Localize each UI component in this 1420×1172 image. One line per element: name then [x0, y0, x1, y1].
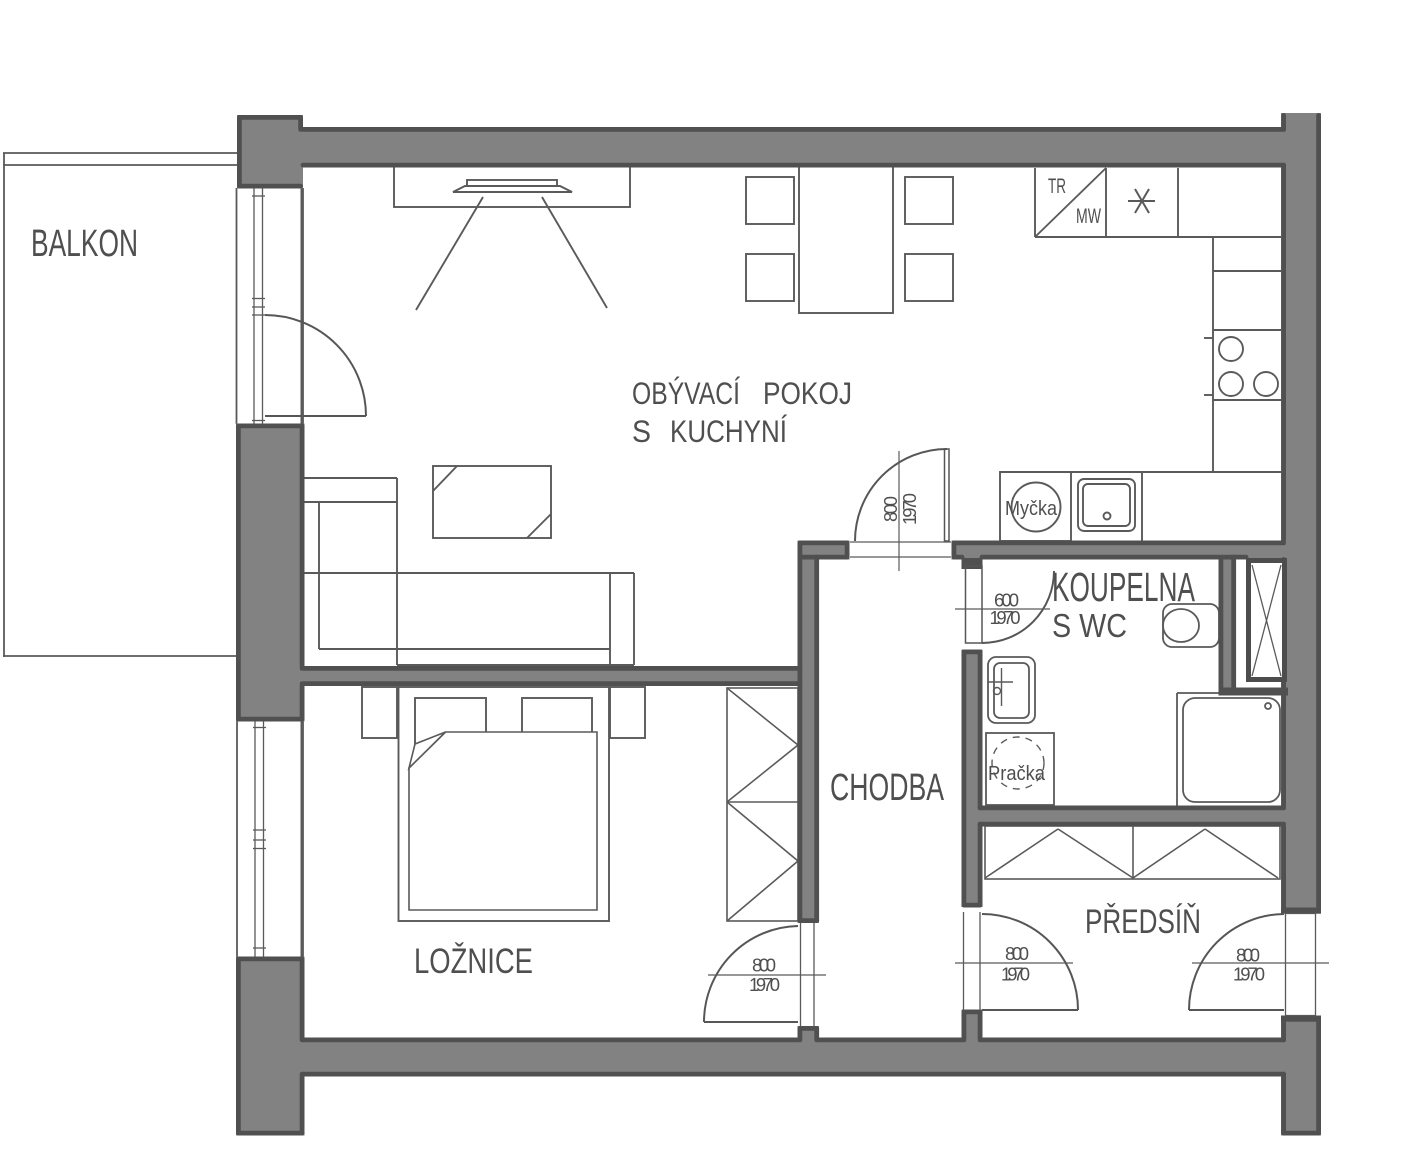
svg-text:1970: 1970	[1001, 964, 1030, 985]
svg-text:S: S	[632, 413, 651, 449]
svg-text:KUCHYNÍ: KUCHYNÍ	[670, 413, 787, 449]
svg-text:S WC: S WC	[1052, 607, 1127, 644]
svg-text:TR: TR	[1048, 175, 1066, 198]
svg-text:PŘEDSÍŇ: PŘEDSÍŇ	[1085, 903, 1201, 941]
svg-text:LOŽNICE: LOŽNICE	[414, 942, 533, 981]
svg-text:MW: MW	[1076, 205, 1101, 228]
svg-text:KOUPELNA: KOUPELNA	[1052, 564, 1195, 610]
svg-text:Pračka: Pračka	[988, 763, 1046, 785]
svg-text:OBÝVACÍ: OBÝVACÍ	[632, 375, 740, 411]
svg-text:BALKON: BALKON	[31, 223, 138, 265]
svg-text:800: 800	[1005, 943, 1029, 964]
svg-text:800: 800	[1236, 945, 1260, 966]
svg-text:Myčka: Myčka	[1005, 498, 1058, 520]
svg-text:1970: 1970	[899, 493, 920, 525]
svg-text:1970: 1970	[749, 974, 780, 995]
svg-text:POKOJ: POKOJ	[763, 375, 852, 411]
svg-text:1970: 1970	[990, 607, 1021, 628]
svg-text:800: 800	[752, 955, 776, 976]
svg-text:800: 800	[880, 496, 901, 522]
svg-text:CHODBA: CHODBA	[830, 767, 944, 809]
svg-text:1970: 1970	[1233, 964, 1265, 985]
